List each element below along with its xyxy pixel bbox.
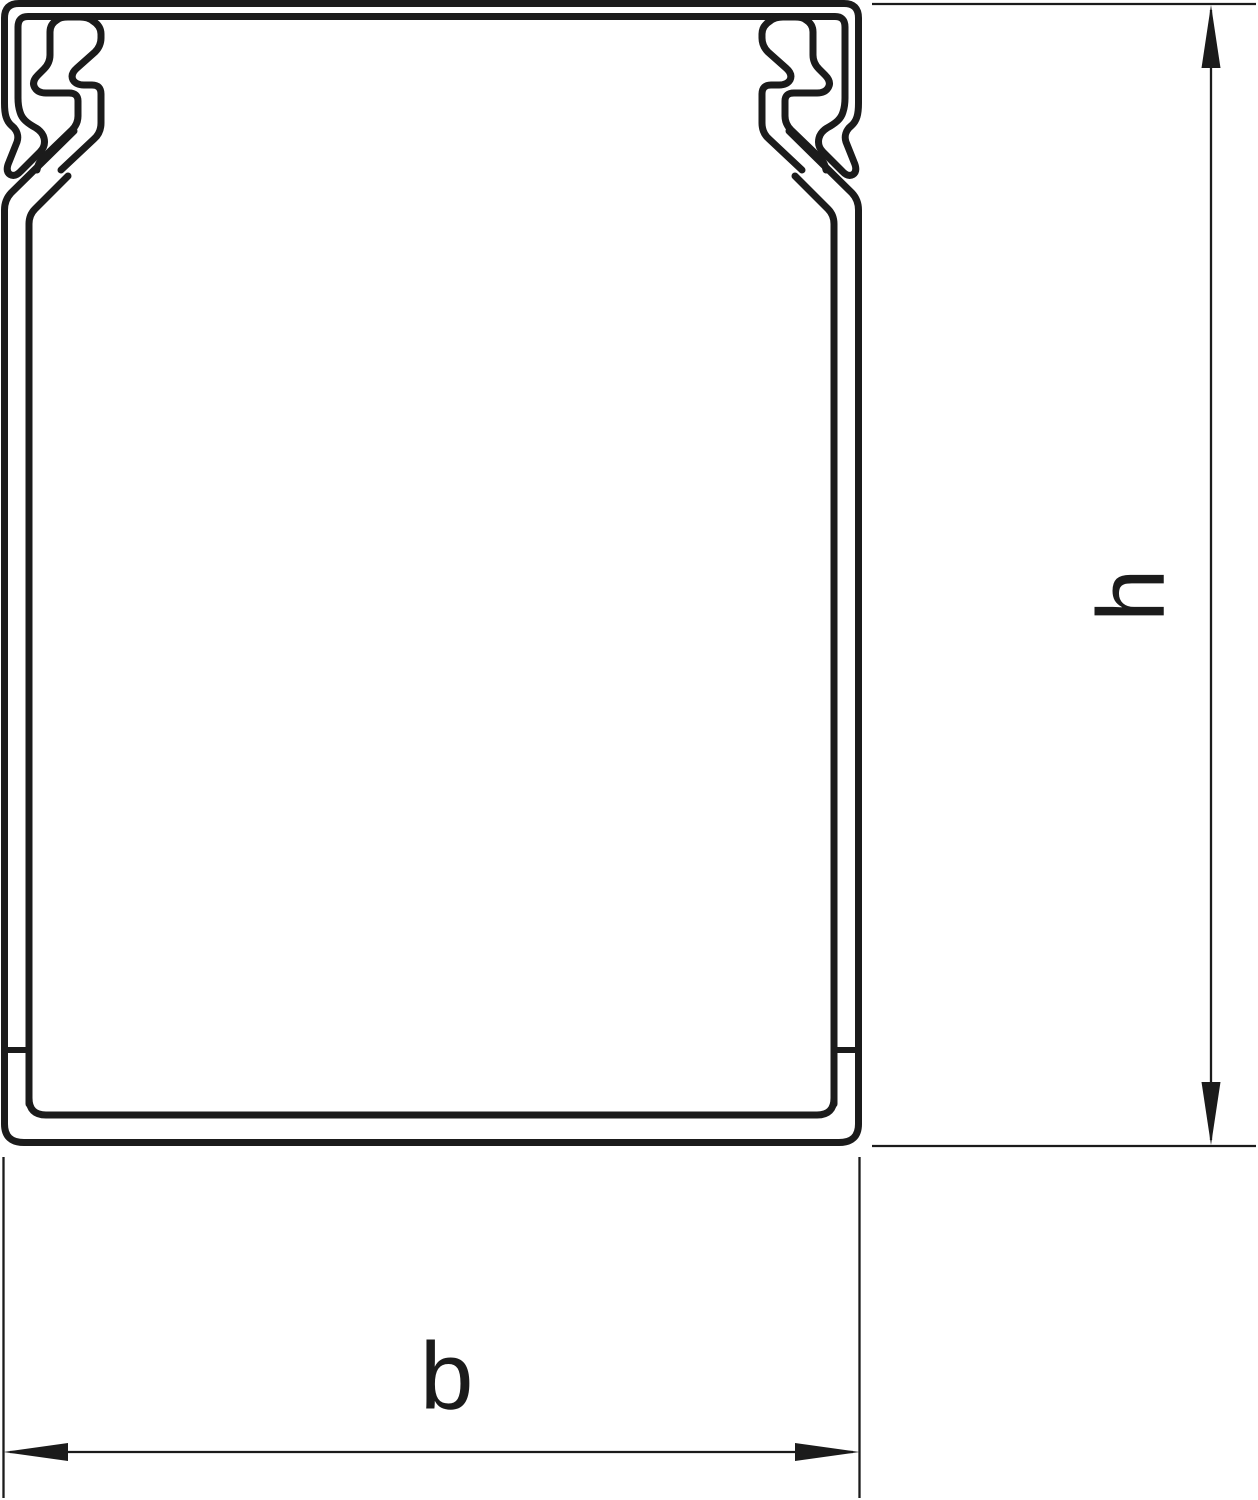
width-arrow-right-icon [795,1443,860,1461]
width-dimension-label: b [420,1323,473,1430]
height-arrow-up-icon [1202,5,1221,68]
width-dimension: b [4,1157,860,1498]
height-dimension: h [872,4,1256,1146]
left-latch-assembly [2,4,101,1121]
side-wall-inner-line [29,176,68,1104]
drawing-canvas: h b [0,0,1258,1500]
duct-profile [2,4,861,1143]
base-inner-line [29,1098,834,1115]
height-dimension-label: h [1078,569,1185,622]
side-wall-outer-line [5,131,75,1120]
right-latch-assembly [762,4,861,1121]
height-arrow-down-icon [1202,1082,1221,1145]
width-arrow-left-icon [4,1443,69,1461]
duct-cross-section-drawing: h b [0,0,1258,1500]
